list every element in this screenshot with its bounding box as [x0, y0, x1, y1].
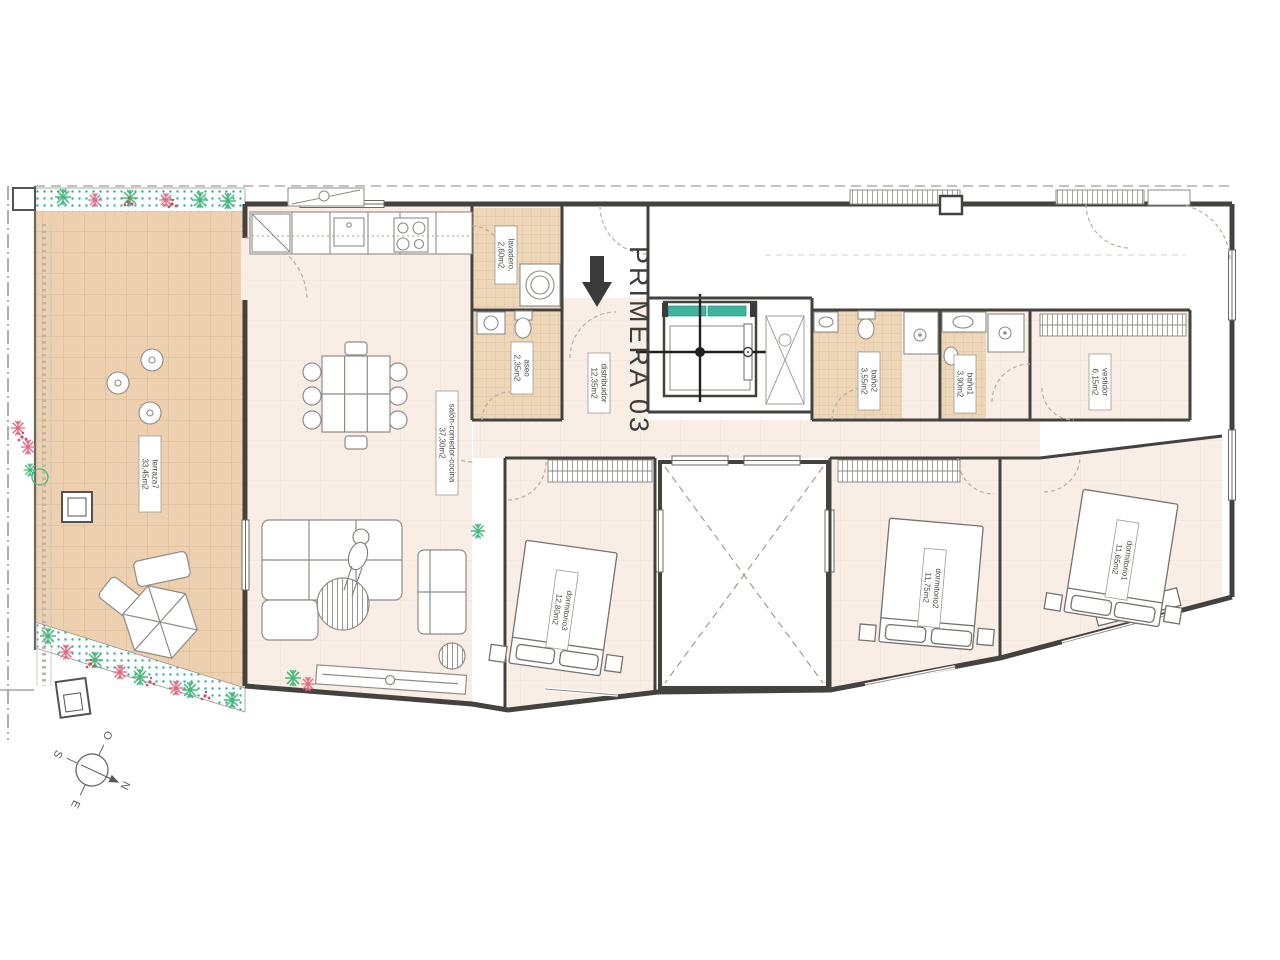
label-terraza: terraza7 33,45m2 [139, 436, 161, 512]
compass-north: N [117, 779, 131, 791]
planter-box-top [13, 188, 35, 210]
room-name: terraza7 [151, 459, 160, 489]
fragment-box [1148, 190, 1190, 205]
planter-box-left [62, 492, 92, 522]
bath2-wc-tank [858, 311, 875, 319]
room-area: 12,35m2 [590, 367, 599, 399]
compass-needle [81, 765, 114, 780]
floor-plan-page: terraza7 33,45m2 salón-comedor-cocina 37… [0, 0, 1280, 960]
planter-box-bottom [56, 678, 91, 718]
indoor-plant-green [285, 670, 301, 686]
kitchen-sink [334, 218, 364, 246]
room-name: vestidor [1101, 368, 1110, 396]
room-area: 2,60m2 [497, 242, 506, 269]
aseo-wc [515, 318, 531, 338]
corridor-floor [473, 420, 1040, 458]
toilet-room [477, 311, 532, 338]
room-name: distribuidor [600, 363, 609, 402]
service-shaft [766, 316, 804, 404]
elevator-center-dot [695, 347, 705, 357]
label-salon: salón-comedor-cocina 37,30m2 [436, 391, 458, 495]
cooktop [394, 218, 428, 252]
label-distribuidor: distribuidor 12,35m2 [588, 353, 610, 413]
room-name: aseo [523, 359, 532, 377]
floorplan-canvas: terraza7 33,45m2 salón-comedor-cocina 37… [0, 0, 1280, 960]
compass-west: O [100, 729, 115, 742]
room-name: baño2 [870, 370, 879, 393]
elevator-cab [670, 326, 750, 390]
round-rug [317, 578, 369, 630]
room-area: 6,15m2 [1091, 369, 1100, 396]
compass-south: S [51, 748, 65, 760]
room-area: 37,30m2 [438, 427, 447, 459]
laundry-room [520, 264, 560, 306]
indoor-plant-pink [301, 677, 315, 691]
room-area: 33,45m2 [141, 458, 150, 490]
loveseat [418, 550, 466, 634]
compass-east: E [68, 798, 82, 810]
room-name: baño1 [966, 373, 975, 396]
room-area: 3,55m2 [860, 368, 869, 395]
elevator-door-right [708, 306, 746, 316]
room-name: lavadero, [507, 239, 516, 272]
column [940, 196, 962, 214]
label-banyo2: baño2 3,55m2 [858, 352, 880, 410]
wall-plant-green [471, 524, 485, 538]
compass-rose: N E S O [35, 713, 148, 825]
label-lavadero: lavadero, 2,60m2 [495, 226, 517, 284]
plan-title: PRIMERA 03 [624, 246, 654, 435]
terrace-door-gap [241, 238, 250, 300]
door-jamb-right [750, 303, 756, 317]
door-jamb-left [662, 303, 668, 317]
room-name: salón-comedor-cocina [448, 404, 457, 483]
kitchen [250, 212, 472, 254]
side-table [439, 643, 465, 669]
bath1-basin [953, 316, 973, 328]
chaise [262, 600, 318, 640]
label-aseo: aseo 2,35m2 [511, 342, 533, 394]
bath2-wc [858, 319, 874, 339]
elevator-core [636, 208, 810, 410]
label-banyo1: baño1 3,90m2 [954, 355, 976, 413]
label-vestidor: vestidor 6,15m2 [1089, 354, 1111, 410]
patio [654, 456, 834, 688]
room-area: 3,90m2 [956, 371, 965, 398]
pulley-dot [747, 351, 749, 353]
fragment-wardrobe-2 [1056, 190, 1144, 204]
room-area: 2,35m2 [513, 355, 522, 382]
